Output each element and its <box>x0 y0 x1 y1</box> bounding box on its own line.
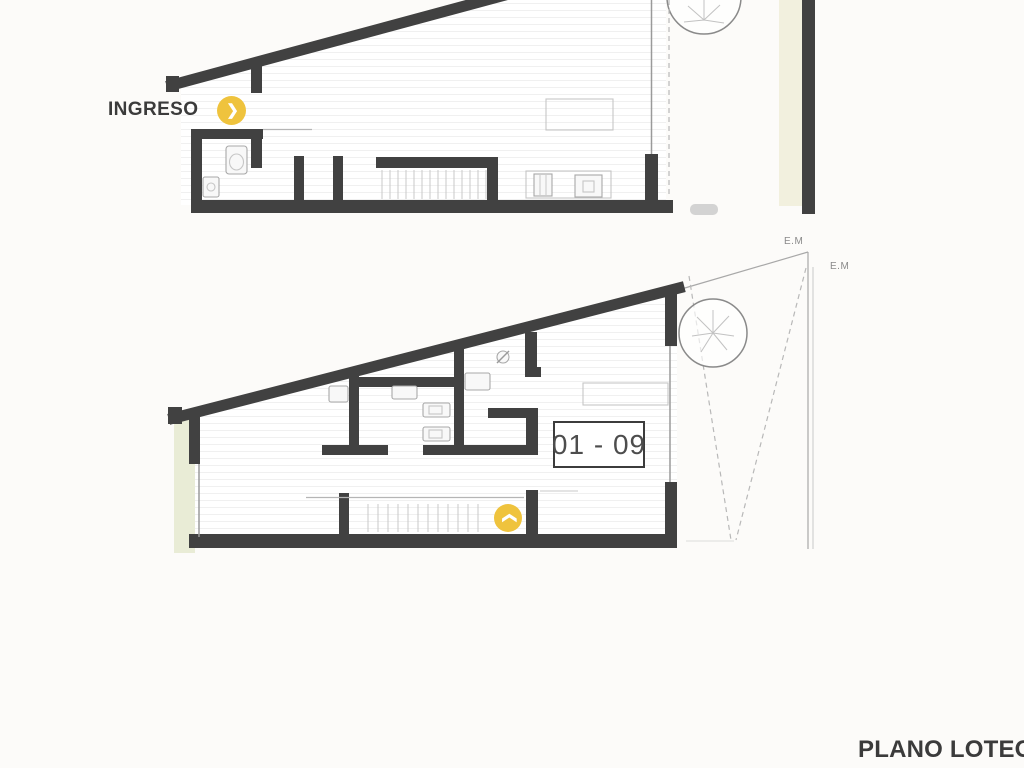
chevron-right-icon: ❯ <box>226 103 239 118</box>
lot-boundary <box>678 252 813 549</box>
tree-icon <box>667 0 741 34</box>
lower-floor-plan <box>168 252 813 553</box>
unit-number-label: 01 - 09 <box>552 429 646 461</box>
entrance-label: INGRESO <box>108 99 198 121</box>
em-marker-top: E.M <box>784 236 803 247</box>
stairs-up-marker: ❯ <box>494 504 522 532</box>
door-step <box>690 204 718 215</box>
upper-side-strip <box>779 0 802 206</box>
entrance-marker: ❯ <box>217 96 246 125</box>
upper-floor-texture <box>181 0 666 205</box>
sheet-title: PLANO LOTEO <box>858 736 1024 764</box>
tree-icon <box>679 299 747 367</box>
lower-floor-texture <box>186 293 677 543</box>
toilet-icon <box>226 146 247 174</box>
sink-icon <box>203 177 219 197</box>
chevron-up-icon: ❯ <box>501 512 515 524</box>
floor-plan-sheet: INGRESO ❯ 01 - 09 ❯ E.M E.M PLANO LOTEO <box>0 0 1024 768</box>
unit-number-box: 01 - 09 <box>553 421 645 468</box>
em-marker-right: E.M <box>830 261 849 272</box>
upper-floor-plan <box>166 0 815 215</box>
